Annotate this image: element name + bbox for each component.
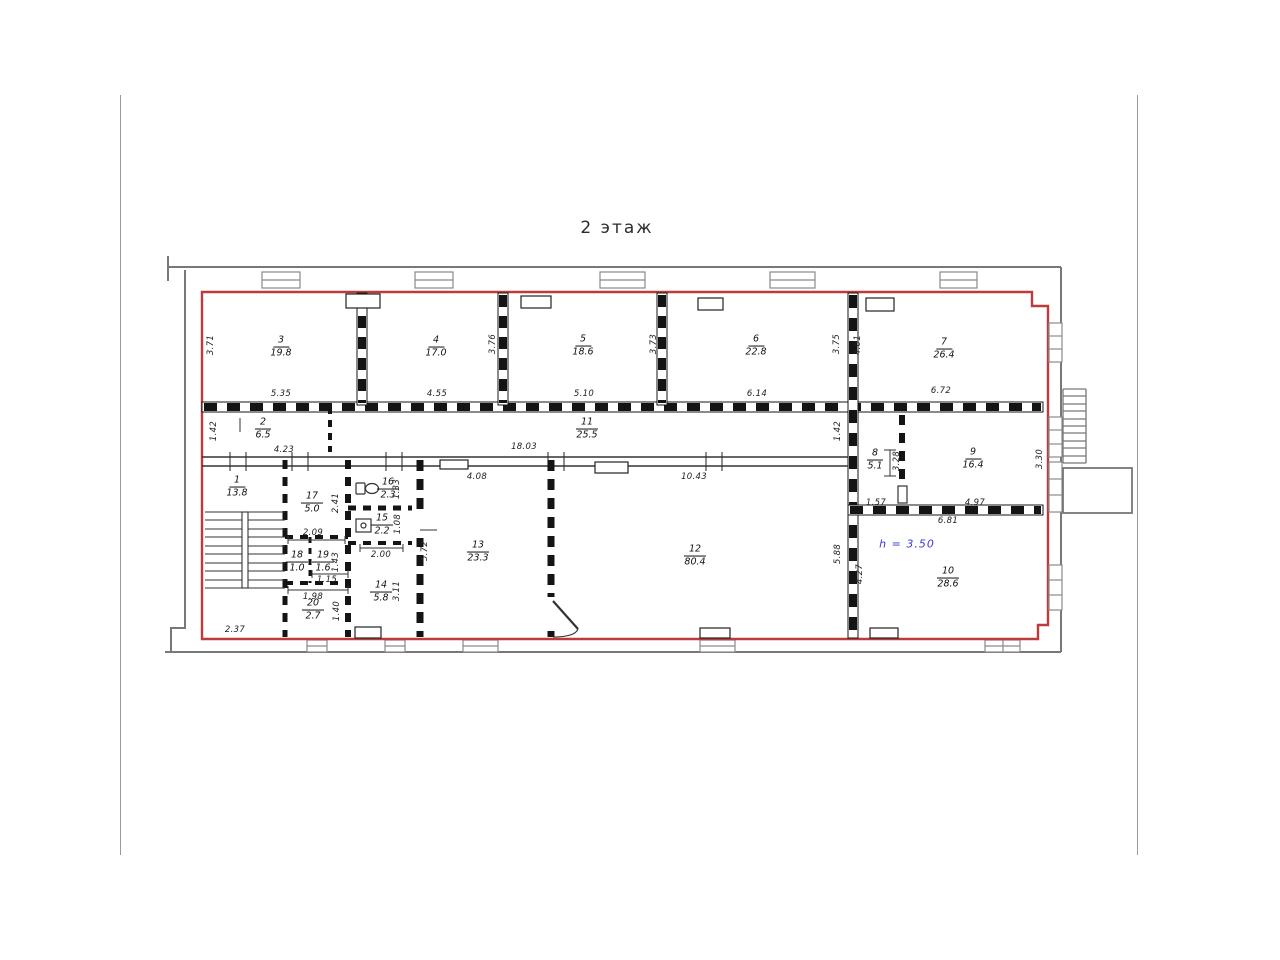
room-label-2: 26.5 xyxy=(255,418,271,441)
dim-label: 1.08 xyxy=(393,514,403,534)
fire-escape-stairs-icon xyxy=(1063,389,1132,513)
dim-label: 5.72 xyxy=(420,541,430,561)
dim-label: 1.15 xyxy=(317,575,337,585)
room-label-1: 113.8 xyxy=(226,476,247,499)
dim-label: 1.98 xyxy=(303,592,323,602)
dim-label: 4.97 xyxy=(965,498,985,508)
room-label-10: 1028.6 xyxy=(937,567,959,590)
floor-plan-page: 2 этаж xyxy=(0,0,1280,960)
room-label-11: 1125.5 xyxy=(576,418,598,441)
dim-label: 4.27 xyxy=(855,564,865,584)
dim-label: 10.43 xyxy=(681,472,707,482)
dim-label: 6.81 xyxy=(938,516,958,526)
window-icons-top xyxy=(262,272,977,288)
room-label-5: 518.6 xyxy=(572,335,593,358)
room-label-4: 417.0 xyxy=(425,336,446,359)
room-label-7: 726.4 xyxy=(933,338,954,361)
staircase-icon xyxy=(205,512,285,588)
dim-label: 3.73 xyxy=(649,334,659,354)
dim-label: 5.10 xyxy=(574,389,594,399)
dim-label: 2.00 xyxy=(371,550,391,560)
ceiling-height-note: h = 3.50 xyxy=(879,538,935,551)
dim-label: 4.01 xyxy=(853,335,863,355)
room-label-8: 85.1 xyxy=(867,449,883,472)
dim-label: 1.33 xyxy=(392,479,402,499)
dim-label: 1.42 xyxy=(209,421,219,441)
dim-label: 3.11 xyxy=(392,581,402,601)
dim-label: 3.30 xyxy=(1035,449,1045,469)
dim-label: 2.09 xyxy=(303,528,323,538)
room-label-18: 181.0 xyxy=(286,551,308,574)
sink-icon xyxy=(356,519,371,532)
outer-wall-outline xyxy=(165,256,1061,652)
dim-label: 2.37 xyxy=(225,625,245,635)
dim-label: 4.55 xyxy=(427,389,447,399)
window-icons-bottom xyxy=(307,640,1020,652)
room-label-9: 916.4 xyxy=(962,448,983,471)
room-label-6: 622.8 xyxy=(745,335,766,358)
room-label-12: 1280.4 xyxy=(684,545,706,568)
dim-label: 1.42 xyxy=(833,421,843,441)
dim-label: 5.88 xyxy=(833,544,843,564)
dim-label: 6.72 xyxy=(931,386,951,396)
room-label-3: 319.8 xyxy=(270,336,291,359)
toilet-icon xyxy=(356,483,379,494)
dim-label: 1.40 xyxy=(332,601,342,621)
floor-plan-drawing xyxy=(0,0,1280,960)
dim-label: 1.43 xyxy=(331,552,341,572)
dim-label: 3.28 xyxy=(892,451,902,471)
dim-label: 1.57 xyxy=(866,498,886,508)
dim-label: 3.75 xyxy=(832,334,842,354)
room-label-14: 145.8 xyxy=(370,581,392,604)
dim-label: 5.35 xyxy=(271,389,291,399)
dim-label: 6.14 xyxy=(747,389,767,399)
dim-label: 4.23 xyxy=(274,445,294,455)
room-label-15: 152.2 xyxy=(371,514,393,537)
room-label-13: 1323.3 xyxy=(467,541,489,564)
dim-label: 2.41 xyxy=(331,493,341,513)
dim-label: 3.76 xyxy=(488,334,498,354)
dim-label: 3.71 xyxy=(206,335,216,355)
room-label-17: 175.0 xyxy=(301,492,323,515)
dim-label: 18.03 xyxy=(511,442,537,452)
dim-label: 4.08 xyxy=(467,472,487,482)
